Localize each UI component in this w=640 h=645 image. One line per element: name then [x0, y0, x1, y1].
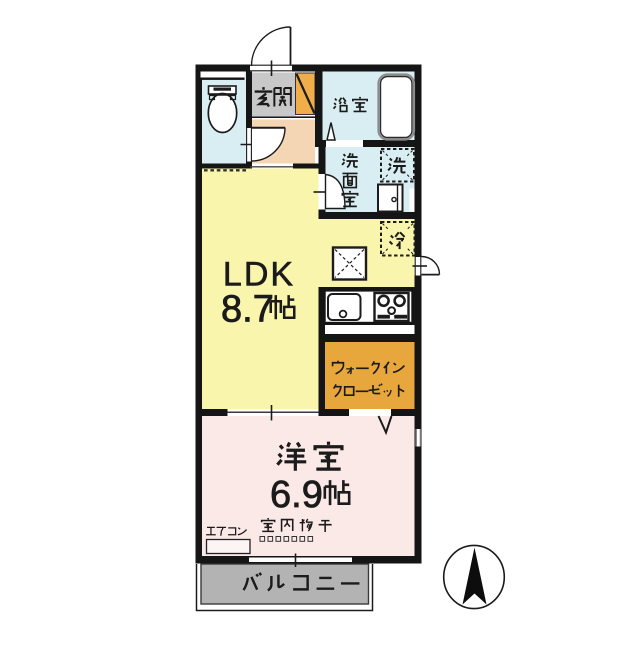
svg-text:6.9: 6.9	[270, 474, 323, 516]
svg-text:8.7: 8.7	[221, 289, 274, 331]
